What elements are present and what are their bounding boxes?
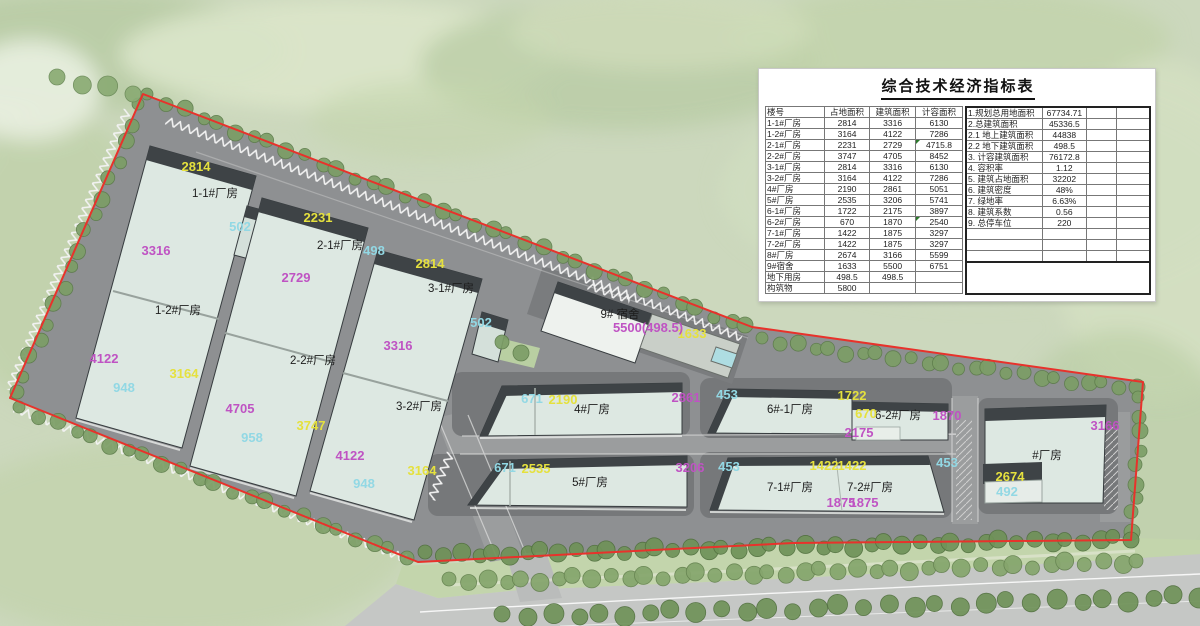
table-cell: 1722 (824, 206, 870, 217)
table-cell: 1.12 (1042, 163, 1086, 174)
table-cell: 3297 (915, 239, 962, 250)
building-label: 7-2#厂房 (847, 481, 893, 494)
dimension-label: 1875 (850, 495, 879, 510)
indicator-tables: 楼号占地面积建筑面积计容面积1-1#厂房2814331661301-2#厂房31… (765, 106, 1151, 295)
building-label: #厂房 (1032, 449, 1061, 462)
dimension-label: 453 (718, 459, 740, 474)
table-row (966, 229, 1150, 240)
table-row: 8. 建筑系数0.56 (966, 207, 1150, 218)
dimension-label: 1422 (838, 458, 867, 473)
table-cell: 2175 (870, 206, 916, 217)
table-cell: 2190 (824, 184, 870, 195)
table-row: 2.2 地下建筑面积498.5 (966, 141, 1150, 152)
table-cell (1086, 141, 1116, 152)
building-label: 1-2#厂房 (155, 304, 201, 317)
dimension-label: 2231 (304, 210, 333, 225)
table-cell: 2231 (824, 140, 870, 151)
table-cell: 3-1#厂房 (766, 162, 825, 173)
table-row: 6-1#厂房172221753897 (766, 206, 963, 217)
dimension-label: 2861 (672, 390, 701, 405)
table-cell (1086, 229, 1116, 240)
table-cell (1042, 251, 1086, 263)
building-label: 1-1#厂房 (192, 187, 238, 200)
table-cell: 5. 建筑占地面积 (966, 174, 1042, 185)
table-cell: 2.2 地下建筑面积 (966, 141, 1042, 152)
table-cell: 3316 (870, 162, 916, 173)
table-row: 8#厂房267431665599 (766, 250, 963, 261)
table-cell (1086, 207, 1116, 218)
table-cell: 8452 (915, 151, 962, 162)
table-cell (966, 262, 1150, 294)
table-cell: 9#宿舍 (766, 261, 825, 272)
dimension-label: 3316 (384, 338, 413, 353)
table-cell: 670 (824, 217, 870, 228)
dimension-label: 3316 (142, 243, 171, 258)
table-cell: 4122 (870, 129, 916, 140)
table-cell: 8#厂房 (766, 250, 825, 261)
table-cell: 2.1 地上建筑面积 (966, 130, 1042, 141)
dimension-label: 2535 (522, 461, 551, 476)
table-row: 7-2#厂房142218753297 (766, 239, 963, 250)
table-cell: 5599 (915, 250, 962, 261)
table-cell (1116, 207, 1150, 218)
table-cell: 4705 (870, 151, 916, 162)
table-cell: 8. 建筑系数 (966, 207, 1042, 218)
panel-title: 综合技术经济指标表 (765, 75, 1151, 100)
table-cell (1116, 141, 1150, 152)
table-cell (1086, 174, 1116, 185)
table-cell: 7286 (915, 173, 962, 184)
table-cell: 3897 (915, 206, 962, 217)
table-cell: 地下用房 (766, 272, 825, 283)
table-cell: 6130 (915, 162, 962, 173)
table-cell: 5800 (824, 283, 870, 294)
table-cell (1116, 119, 1150, 130)
dimension-label: 453 (716, 387, 738, 402)
table-cell: 1-1#厂房 (766, 118, 825, 129)
table-row: 4#厂房219028615051 (766, 184, 963, 195)
dimension-label: 492 (996, 484, 1018, 499)
table-cell: 7. 绿地率 (966, 196, 1042, 207)
table-cell: 2-1#厂房 (766, 140, 825, 151)
table-cell: 6.63% (1042, 196, 1086, 207)
table-row: 5. 建筑占地面积32202 (966, 174, 1150, 185)
table-cell: 1633 (824, 261, 870, 272)
dimension-label: 671 (494, 460, 516, 475)
table-cell (1116, 218, 1150, 229)
table-row: 3-1#厂房281433166130 (766, 162, 963, 173)
dimension-label: 1422 (810, 458, 839, 473)
table-cell: 498.5 (870, 272, 916, 283)
dimension-label: 3164 (408, 463, 438, 478)
table-cell: 498.5 (824, 272, 870, 283)
building-label: 7-1#厂房 (767, 481, 813, 494)
indicators-panel: 综合技术经济指标表 楼号占地面积建筑面积计容面积1-1#厂房2814331661… (758, 68, 1156, 302)
dimension-label: 958 (241, 430, 263, 445)
dimension-label: 2190 (549, 392, 578, 407)
dimension-label: 2729 (282, 270, 311, 285)
building-label: 6#-1厂房 (767, 403, 813, 416)
table-cell: 2814 (824, 118, 870, 129)
table-row: 9. 总停车位220 (966, 218, 1150, 229)
table-cell: 2814 (824, 162, 870, 173)
table-cell: 3164 (824, 129, 870, 140)
dimension-label: 670 (855, 406, 877, 421)
table-cell: 1-2#厂房 (766, 129, 825, 140)
table-cell: 4. 容积率 (966, 163, 1042, 174)
table-row: 1.规划总用地面积67734.71 (966, 107, 1150, 119)
table-cell: 9. 总停车位 (966, 218, 1042, 229)
table-cell (870, 283, 916, 294)
dimension-label: 5500(498.5) (613, 320, 683, 335)
table-cell: 构筑物 (766, 283, 825, 294)
table-cell: 6. 建筑密度 (966, 185, 1042, 196)
table-row: 7-1#厂房142218753297 (766, 228, 963, 239)
dimension-label: 3747 (297, 418, 326, 433)
building-label: 3-2#厂房 (396, 400, 442, 413)
table-row: 2.总建筑面积45336.5 (966, 119, 1150, 130)
table-cell (1116, 107, 1150, 119)
building-label: 5#厂房 (572, 476, 608, 489)
table-cell (966, 240, 1042, 251)
building-label: 4#厂房 (574, 403, 610, 416)
dimension-label: 3166 (1091, 418, 1120, 433)
table-cell: 楼号 (766, 107, 825, 118)
table-cell: 6-1#厂房 (766, 206, 825, 217)
dimension-label: 2175 (845, 425, 874, 440)
dimension-label: 2814 (182, 159, 212, 174)
dimension-label: 948 (113, 380, 135, 395)
dimension-label: 502 (229, 219, 251, 234)
table-cell: 4715.8 (915, 140, 962, 151)
table-row: 3. 计容建筑面积76172.8 (966, 152, 1150, 163)
table-row: 2-1#厂房223127294715.8 (766, 140, 963, 151)
table-cell: 6751 (915, 261, 962, 272)
table-cell: 7-2#厂房 (766, 239, 825, 250)
table-cell (1086, 185, 1116, 196)
dimension-label: 3206 (676, 460, 705, 475)
table-cell: 0.56 (1042, 207, 1086, 218)
building-label: 2-1#厂房 (317, 239, 363, 252)
table-cell (1086, 218, 1116, 229)
table-cell (1086, 152, 1116, 163)
table-row: 1-1#厂房281433166130 (766, 118, 963, 129)
building-label: 6-2#厂房 (875, 409, 921, 422)
table-cell: 2535 (824, 195, 870, 206)
panel-title-text: 综合技术经济指标表 (881, 75, 1034, 100)
table-cell: 1.规划总用地面积 (966, 107, 1042, 119)
dimension-label: 498 (363, 243, 385, 258)
table-row (966, 262, 1150, 294)
table-cell: 2861 (870, 184, 916, 195)
building-label: 2-2#厂房 (290, 354, 336, 367)
table-cell: 3297 (915, 228, 962, 239)
dimension-label: 671 (521, 391, 543, 406)
table-cell (1116, 240, 1150, 251)
table-cell (1116, 185, 1150, 196)
table-cell: 48% (1042, 185, 1086, 196)
table-cell: 44838 (1042, 130, 1086, 141)
table-cell: 3166 (870, 250, 916, 261)
table-cell: 5500 (870, 261, 916, 272)
table-cell: 76172.8 (1042, 152, 1086, 163)
table-cell: 2.总建筑面积 (966, 119, 1042, 130)
table-cell: 45336.5 (1042, 119, 1086, 130)
table-row: 构筑物5800 (766, 283, 963, 294)
table-cell (915, 272, 962, 283)
table-cell: 67734.71 (1042, 107, 1086, 119)
table-cell: 3206 (870, 195, 916, 206)
table-cell (966, 229, 1042, 240)
table-cell (1086, 119, 1116, 130)
table-cell (1116, 196, 1150, 207)
dimension-label: 4705 (226, 401, 255, 416)
dimension-label: 1870 (933, 408, 962, 423)
table-row: 楼号占地面积建筑面积计容面积 (766, 107, 963, 118)
table-row: 9#宿舍163355006751 (766, 261, 963, 272)
summary-indicator-table: 1.规划总用地面积67734.712.总建筑面积45336.52.1 地上建筑面… (965, 106, 1151, 295)
table-cell (915, 283, 962, 294)
table-cell (1116, 163, 1150, 174)
table-cell (1042, 240, 1086, 251)
table-cell: 1422 (824, 228, 870, 239)
building-label: 9# 宿舍 (601, 307, 640, 321)
table-cell: 1875 (870, 239, 916, 250)
table-cell: 32202 (1042, 174, 1086, 185)
table-row (966, 251, 1150, 263)
table-cell: 5#厂房 (766, 195, 825, 206)
table-cell (1042, 229, 1086, 240)
table-cell (1086, 130, 1116, 141)
dimension-label: 1722 (838, 388, 867, 403)
dimension-label: 453 (936, 455, 958, 470)
table-cell: 1870 (870, 217, 916, 228)
table-cell: 计容面积 (915, 107, 962, 118)
table-cell: 1422 (824, 239, 870, 250)
table-cell: 220 (1042, 218, 1086, 229)
table-row: 5#厂房253532065741 (766, 195, 963, 206)
table-cell: 5741 (915, 195, 962, 206)
table-cell: 3. 计容建筑面积 (966, 152, 1042, 163)
table-cell: 6130 (915, 118, 962, 129)
table-cell (1086, 251, 1116, 263)
table-cell (1086, 107, 1116, 119)
table-cell: 6-2#厂房 (766, 217, 825, 228)
table-cell (1116, 130, 1150, 141)
table-cell (966, 251, 1042, 263)
table-row: 1-2#厂房316441227286 (766, 129, 963, 140)
table-cell: 2-2#厂房 (766, 151, 825, 162)
table-cell: 1875 (870, 228, 916, 239)
table-cell: 2729 (870, 140, 916, 151)
table-row: 7. 绿地率6.63% (966, 196, 1150, 207)
table-cell (1086, 240, 1116, 251)
table-cell: 7-1#厂房 (766, 228, 825, 239)
table-row: 3-2#厂房316441227286 (766, 173, 963, 184)
table-cell (1116, 251, 1150, 263)
dimension-label: 3164 (170, 366, 200, 381)
table-row (966, 240, 1150, 251)
dimension-label: 4122 (336, 448, 365, 463)
table-cell: 4122 (870, 173, 916, 184)
table-cell: 7286 (915, 129, 962, 140)
table-cell: 3-2#厂房 (766, 173, 825, 184)
table-cell (1116, 152, 1150, 163)
table-cell: 占地面积 (824, 107, 870, 118)
table-cell: 建筑面积 (870, 107, 916, 118)
table-row: 6-2#厂房67018702540 (766, 217, 963, 228)
table-row: 2.1 地上建筑面积44838 (966, 130, 1150, 141)
table-cell: 3747 (824, 151, 870, 162)
table-cell: 2674 (824, 250, 870, 261)
dimension-label: 4122 (90, 351, 119, 366)
table-cell: 3164 (824, 173, 870, 184)
table-cell (1086, 163, 1116, 174)
table-cell: 498.5 (1042, 141, 1086, 152)
table-cell (1116, 174, 1150, 185)
dimension-label: 2814 (416, 256, 446, 271)
building-label: 3-1#厂房 (428, 282, 474, 295)
dimension-label: 2674 (996, 469, 1026, 484)
dimension-label: 502 (470, 315, 492, 330)
building-area-table: 楼号占地面积建筑面积计容面积1-1#厂房2814331661301-2#厂房31… (765, 106, 963, 294)
table-cell: 3316 (870, 118, 916, 129)
table-cell: 4#厂房 (766, 184, 825, 195)
table-cell: 5051 (915, 184, 962, 195)
table-row: 4. 容积率1.12 (966, 163, 1150, 174)
dimension-label: 948 (353, 476, 375, 491)
table-row: 地下用房498.5498.5 (766, 272, 963, 283)
table-cell (1116, 229, 1150, 240)
table-cell: 2540 (915, 217, 962, 228)
table-row: 6. 建筑密度48% (966, 185, 1150, 196)
table-row: 2-2#厂房374747058452 (766, 151, 963, 162)
table-cell (1086, 196, 1116, 207)
